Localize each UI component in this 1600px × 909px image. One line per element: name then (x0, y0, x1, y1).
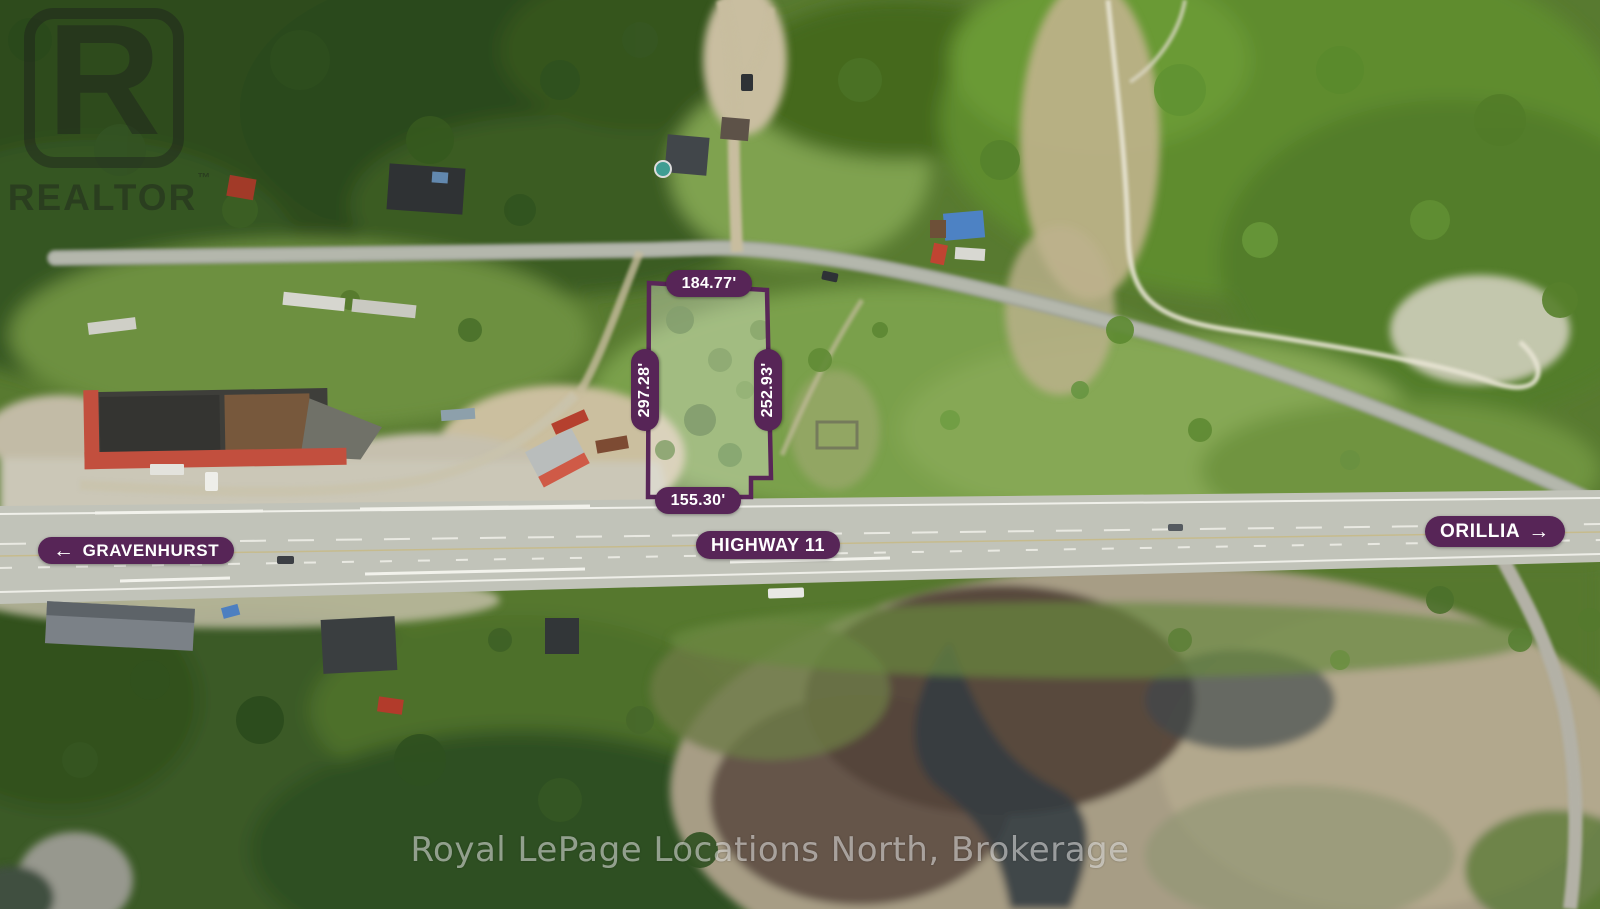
trademark-symbol: ™ (197, 170, 210, 185)
road-label-highway-11: HIGHWAY 11 (696, 531, 840, 559)
measurement-text: 155.30' (671, 492, 726, 510)
aerial-listing-photo: 184.77' 297.28' 252.93' 155.30' ← GRAVEN… (0, 0, 1600, 909)
brokerage-watermark: Royal LePage Locations North, Brokerage (410, 830, 1130, 870)
west-arrow-icon: ← (53, 540, 75, 561)
road-label-gravenhurst: ← GRAVENHURST (38, 537, 234, 564)
measurement-text: 297.28' (636, 363, 654, 418)
road-label-text: GRAVENHURST (83, 541, 220, 561)
realtor-logo-letter: R (47, 1, 161, 159)
road-label-text: ORILLIA (1440, 521, 1520, 543)
lot-measurement-bottom: 155.30' (655, 487, 741, 514)
aerial-terrain-illustration (0, 0, 1600, 909)
realtor-logo-box: R (24, 8, 184, 168)
road-label-text: HIGHWAY 11 (711, 535, 825, 556)
realtor-word-text: REALTOR (8, 177, 197, 218)
lot-measurement-left: 297.28' (631, 349, 659, 431)
road-label-orillia: ORILLIA → (1425, 516, 1565, 547)
measurement-text: 184.77' (682, 275, 737, 293)
east-arrow-icon: → (1528, 521, 1550, 542)
realtor-wordmark: REALTOR™ (4, 170, 214, 219)
measurement-text: 252.93' (759, 363, 777, 418)
lot-measurement-right: 252.93' (754, 349, 782, 431)
lot-measurement-top: 184.77' (666, 270, 752, 297)
